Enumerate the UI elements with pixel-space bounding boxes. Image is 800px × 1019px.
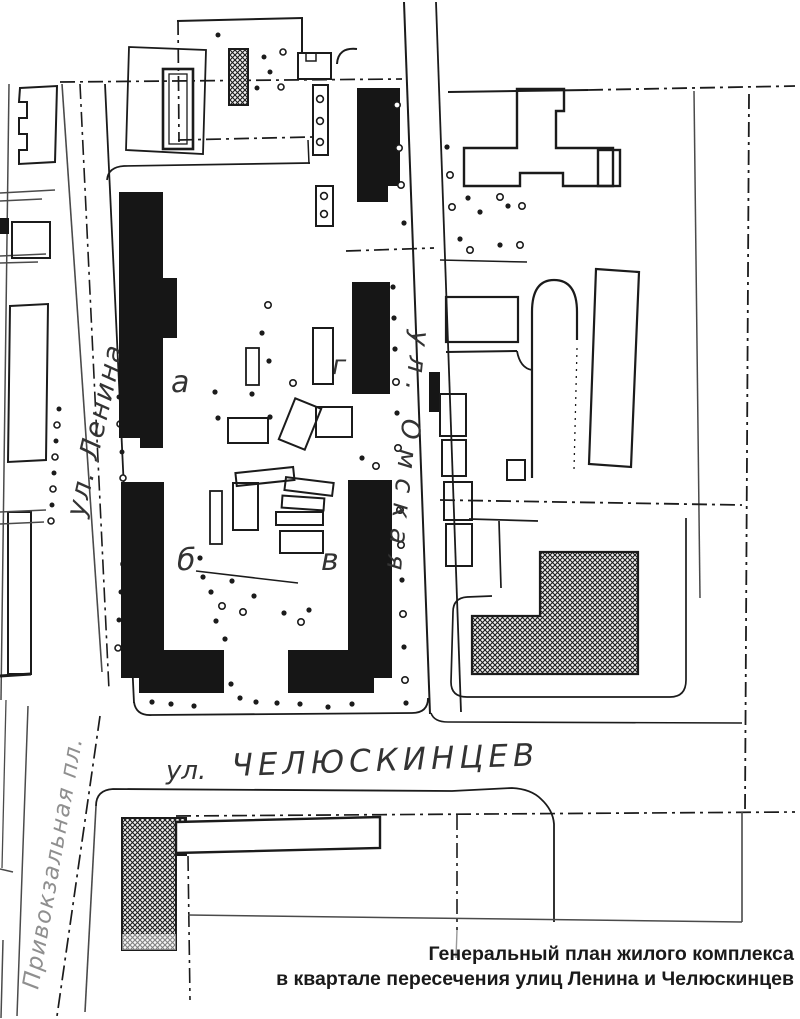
small-building — [598, 150, 620, 186]
courtyard-shed — [313, 328, 333, 384]
street-edge — [436, 2, 461, 712]
block-boundary-dashdot — [745, 94, 749, 812]
caption-line-2: в квартале пересечения улиц Ленина и Чел… — [276, 967, 794, 992]
site-plan-drawing: ул. Ленина а б в — [0, 0, 800, 1019]
trees — [216, 33, 287, 91]
building-label-g: г — [332, 350, 347, 381]
building-label-b: б — [177, 543, 196, 578]
block-north-boundary — [107, 163, 310, 180]
building-g-strip — [352, 282, 390, 394]
block-south-boundary — [134, 698, 428, 715]
central-block: а б в г — [107, 88, 428, 715]
notched-building-outline — [19, 86, 57, 164]
square-label-privokzalnaya: Привокзальная пл. — [18, 735, 88, 991]
building-b — [121, 482, 224, 693]
west-building-outline — [12, 222, 50, 258]
long-building-outline — [589, 269, 639, 467]
long-building-south — [176, 817, 380, 853]
building-a — [119, 192, 177, 448]
caption-line-1: Генеральный план жилого комплекса — [276, 942, 794, 967]
small-shed — [507, 460, 525, 480]
east-trees — [444, 144, 525, 253]
scanned-site-plan-page: { "document": { "kind": "general-plan-dr… — [0, 0, 800, 1019]
building-label-a: а — [171, 365, 189, 400]
school-building-outline — [464, 89, 613, 186]
east-building — [446, 297, 518, 342]
notched-small-building — [298, 53, 331, 79]
street-label-chelyuskintsev: ЧЕЛЮСКИНЦЕВ — [231, 737, 540, 784]
hatched-building-small — [229, 49, 248, 105]
chelyuskintsev-street: ул. ЧЕЛЮСКИНЦЕВ — [165, 737, 540, 786]
east-block — [429, 86, 795, 812]
hook-curve — [337, 49, 357, 64]
west-building-outline — [8, 512, 31, 674]
street-label-chelyuskintsev-prefix: ул. — [165, 756, 206, 786]
arch-building-outline — [532, 280, 577, 478]
hatched-building-large — [472, 552, 638, 674]
west-building-outline — [8, 304, 48, 462]
figure-caption: Генеральный план жилого комплекса в квар… — [276, 942, 794, 992]
